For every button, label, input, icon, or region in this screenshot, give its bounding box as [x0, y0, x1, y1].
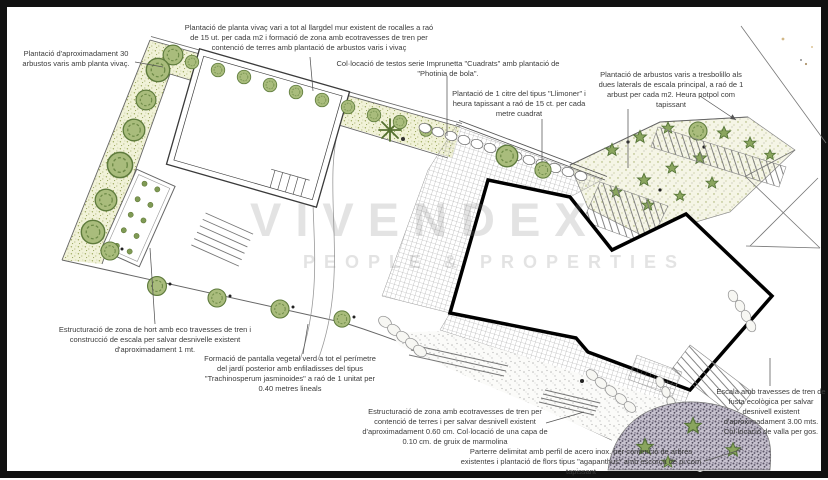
watermark-brand: VIVENDEX [250, 192, 600, 247]
annotation-llimoner: Plantació de 1 citre del tipus "Llimoner… [446, 89, 592, 119]
annotation-ecotravesses: Estructuració de zona amb ecotravesses d… [361, 407, 549, 447]
scan-specks [782, 38, 813, 66]
pool-footprint [166, 49, 349, 207]
annotation-testos-imprunetta: Col·locació de testos serie Imprunetta "… [336, 59, 560, 79]
annotation-pantalla-vegetal: Formació de pantalla vegetal verd a tot … [202, 354, 378, 394]
annotation-escala-fusta: Escala amb travesses de tren de fusta ec… [714, 387, 828, 436]
annotation-arbustos-tresbolillo: Plantació de arbustos varis a tresbolill… [595, 70, 747, 110]
watermark-tagline: PEOPLE & PROPERTIES [303, 252, 686, 273]
annotation-arbustos-30: Plantació d'aproximadament 30 arbustos v… [12, 49, 140, 69]
hort-stairs [191, 213, 253, 266]
scanned-plan-sheet: VIVENDEX PEOPLE & PROPERTIES Plantació d… [0, 0, 828, 480]
annotation-zona-hort: Estructuració de zona de hort amb eco tr… [55, 325, 255, 355]
annotation-planta-vivac-mur: Plantació de planta vivaç vari a tot al … [182, 23, 436, 53]
annotation-parterre: Parterre delimitat amb perfil de acero i… [455, 447, 707, 477]
